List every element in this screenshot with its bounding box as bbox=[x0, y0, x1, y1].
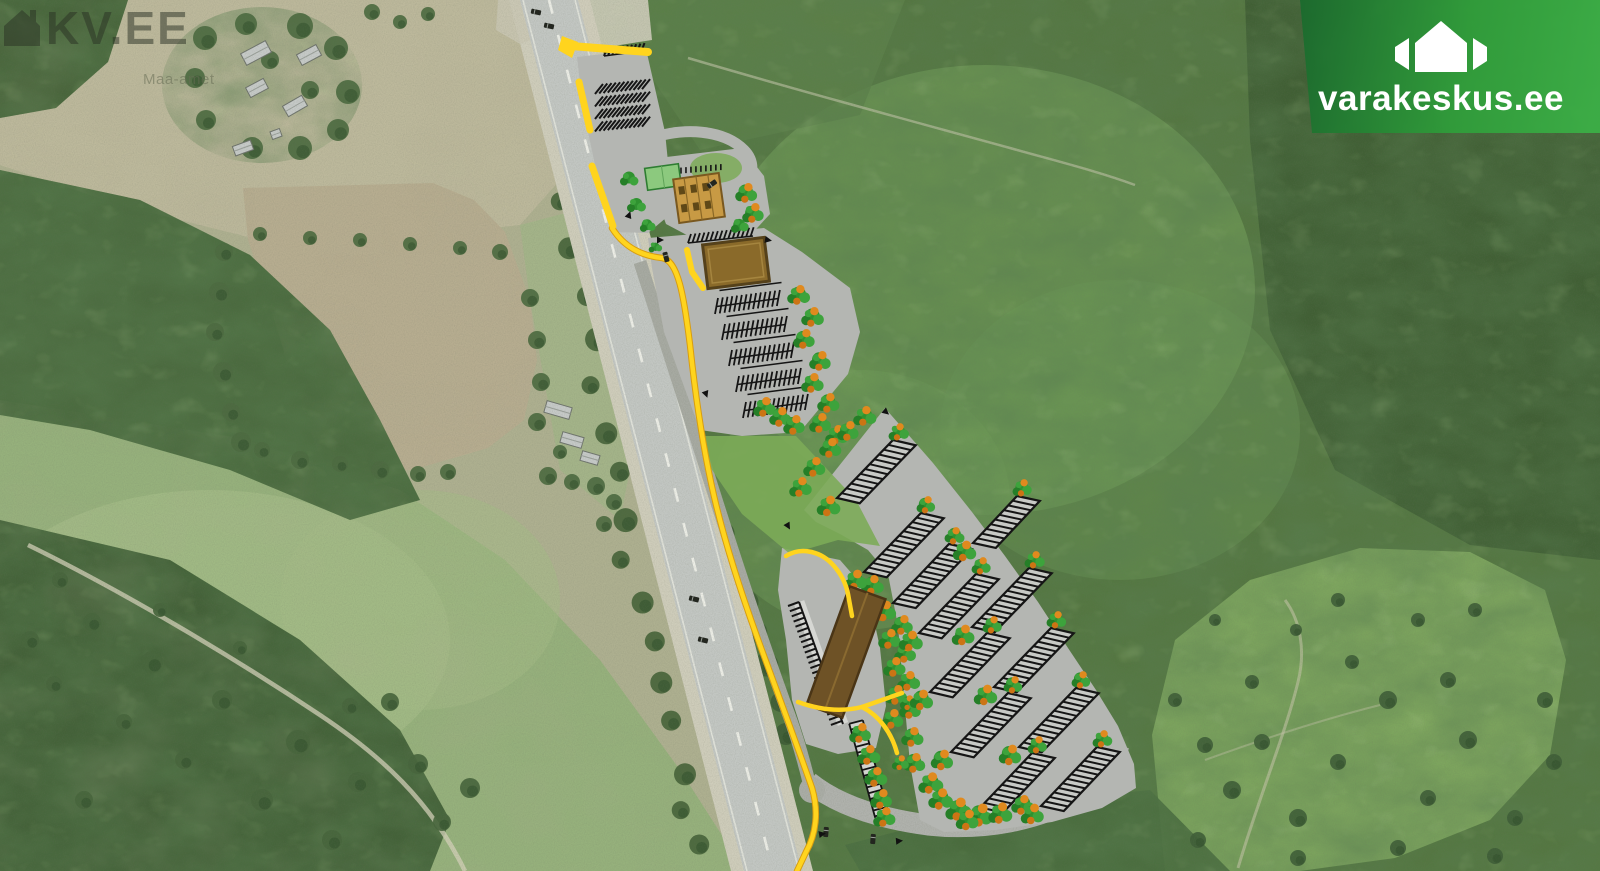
autumn-tree bbox=[959, 554, 967, 562]
autumn-tree bbox=[807, 386, 814, 393]
tree bbox=[813, 380, 824, 391]
tree bbox=[885, 608, 896, 619]
autumn-tree bbox=[775, 420, 782, 427]
tree bbox=[869, 752, 880, 763]
autumn-tree bbox=[903, 684, 910, 691]
canopy-cell bbox=[681, 204, 688, 213]
autumn-tree bbox=[896, 423, 903, 430]
tree bbox=[813, 314, 824, 325]
autumn-tree bbox=[922, 507, 928, 513]
autumn-tree bbox=[796, 285, 804, 293]
autumn-tree bbox=[919, 690, 928, 699]
autumn-tree bbox=[1098, 741, 1104, 747]
autumn-tree bbox=[759, 410, 766, 417]
tree bbox=[829, 503, 840, 514]
autumn-tree bbox=[905, 644, 913, 652]
autumn-tree bbox=[1020, 479, 1027, 486]
autumn-tree bbox=[938, 788, 947, 797]
car-body bbox=[870, 834, 876, 844]
canopy-cell bbox=[705, 200, 712, 209]
canopy-cell bbox=[678, 186, 685, 195]
map-source-text: Maa-amet bbox=[143, 71, 215, 88]
autumn-tree bbox=[952, 527, 959, 534]
tree bbox=[623, 173, 629, 179]
car-symbol bbox=[870, 834, 876, 844]
autumn-tree bbox=[897, 628, 904, 635]
car-body bbox=[823, 827, 829, 837]
autumn-tree bbox=[1018, 490, 1024, 496]
tree bbox=[801, 484, 812, 495]
autumn-tree bbox=[909, 766, 916, 773]
autumn-tree bbox=[762, 397, 770, 405]
autumn-tree bbox=[990, 616, 997, 623]
autumn-tree bbox=[855, 736, 862, 743]
autumn-tree bbox=[1052, 622, 1058, 628]
autumn-tree bbox=[1011, 676, 1018, 683]
tree bbox=[856, 577, 867, 588]
autumn-tree bbox=[1017, 808, 1024, 815]
tree bbox=[627, 204, 635, 212]
autumn-tree bbox=[862, 406, 870, 414]
tree bbox=[866, 413, 877, 424]
autumn-tree bbox=[876, 802, 883, 809]
autumn-tree bbox=[741, 196, 748, 203]
tree bbox=[648, 223, 656, 231]
autumn-tree bbox=[1100, 730, 1107, 737]
autumn-tree bbox=[795, 490, 802, 497]
autumn-tree bbox=[887, 629, 895, 637]
autumn-tree bbox=[1020, 795, 1028, 803]
autumn-tree bbox=[1077, 682, 1083, 688]
autumn-tree bbox=[905, 712, 912, 719]
autumn-tree bbox=[1009, 687, 1015, 693]
tree bbox=[649, 247, 655, 253]
tree bbox=[901, 761, 909, 769]
autumn-tree bbox=[744, 183, 752, 191]
tree bbox=[731, 225, 739, 233]
autumn-tree bbox=[965, 810, 974, 819]
autumn-tree bbox=[879, 820, 886, 827]
autumn-tree bbox=[798, 477, 806, 485]
autumn-tree bbox=[978, 804, 988, 814]
brown-square-building bbox=[703, 237, 770, 288]
autumn-tree bbox=[977, 568, 983, 574]
autumn-tree bbox=[890, 709, 898, 717]
kv-watermark-text: KV.EE bbox=[46, 2, 190, 54]
tree bbox=[955, 533, 964, 542]
autumn-tree bbox=[807, 320, 814, 327]
autumn-tree bbox=[935, 802, 943, 810]
brand-name-text: varakeskus.ee bbox=[1318, 79, 1564, 118]
tree bbox=[900, 429, 909, 438]
autumn-tree bbox=[826, 496, 835, 505]
aerial-map-svg: Maa-amet KV.EE varakeskus.ee bbox=[0, 0, 1600, 871]
tree bbox=[740, 223, 749, 232]
autumn-tree bbox=[859, 419, 866, 426]
autumn-tree bbox=[792, 415, 800, 423]
autumn-tree bbox=[983, 685, 992, 694]
tree bbox=[734, 219, 740, 225]
autumn-tree bbox=[979, 557, 986, 564]
tree bbox=[1103, 736, 1112, 745]
autumn-tree bbox=[956, 798, 966, 808]
autumn-tree bbox=[873, 767, 881, 775]
autumn-tree bbox=[889, 670, 896, 677]
tree bbox=[640, 225, 647, 232]
tree bbox=[876, 774, 887, 785]
tree bbox=[873, 582, 884, 593]
autumn-tree bbox=[1030, 804, 1039, 813]
autumn-tree bbox=[950, 538, 956, 544]
autumn-tree bbox=[748, 216, 755, 223]
autumn-tree bbox=[812, 457, 820, 465]
autumn-tree bbox=[924, 496, 931, 503]
autumn-tree bbox=[1030, 562, 1036, 568]
autumn-tree bbox=[962, 823, 970, 831]
autumn-tree bbox=[846, 421, 854, 429]
autumn-tree bbox=[870, 575, 878, 583]
tree bbox=[909, 678, 920, 689]
car-symbol bbox=[823, 827, 829, 837]
tree bbox=[965, 548, 976, 559]
autumn-tree bbox=[887, 722, 894, 729]
tree bbox=[799, 292, 810, 303]
autumn-tree bbox=[900, 615, 908, 623]
autumn-tree bbox=[863, 758, 870, 765]
autumn-tree bbox=[995, 816, 1003, 824]
autumn-tree bbox=[828, 438, 836, 446]
canopy-structure bbox=[673, 173, 725, 223]
autumn-tree bbox=[818, 413, 826, 421]
autumn-tree bbox=[1054, 611, 1061, 618]
autumn-tree bbox=[879, 789, 887, 797]
autumn-tree bbox=[894, 434, 900, 440]
autumn-tree bbox=[799, 342, 806, 349]
tree bbox=[630, 199, 636, 205]
autumn-tree bbox=[998, 802, 1007, 811]
autumn-tree bbox=[1008, 745, 1017, 754]
autumn-tree bbox=[958, 638, 966, 646]
aerial-site-plan-image: Maa-amet KV.EE varakeskus.ee bbox=[0, 0, 1600, 871]
autumn-tree bbox=[892, 657, 900, 665]
brand-banner: varakeskus.ee bbox=[1300, 0, 1600, 133]
autumn-tree bbox=[904, 705, 909, 710]
autumn-tree bbox=[778, 407, 786, 415]
autumn-tree bbox=[1033, 747, 1039, 753]
autumn-tree bbox=[815, 364, 822, 371]
tree bbox=[1035, 557, 1044, 566]
autumn-tree bbox=[793, 298, 800, 305]
autumn-tree bbox=[962, 541, 971, 550]
autumn-tree bbox=[866, 745, 874, 753]
autumn-tree bbox=[907, 740, 914, 747]
autumn-tree bbox=[912, 753, 920, 761]
autumn-tree bbox=[910, 727, 918, 735]
autumn-tree bbox=[823, 509, 831, 517]
autumn-tree bbox=[916, 703, 924, 711]
autumn-tree bbox=[899, 755, 905, 761]
autumn-tree bbox=[884, 642, 891, 649]
autumn-tree bbox=[810, 373, 818, 381]
tree bbox=[656, 245, 662, 251]
autumn-tree bbox=[925, 786, 933, 794]
canopy-cell bbox=[690, 184, 697, 193]
autumn-tree bbox=[900, 656, 907, 663]
maa-amet-watermark: Maa-amet bbox=[143, 71, 215, 88]
autumn-tree bbox=[823, 406, 830, 413]
tree bbox=[629, 177, 638, 186]
tree bbox=[643, 220, 648, 225]
autumn-tree bbox=[858, 723, 866, 731]
autumn-tree bbox=[1005, 758, 1013, 766]
tree bbox=[651, 243, 655, 247]
autumn-tree bbox=[1035, 736, 1042, 743]
autumn-tree bbox=[1032, 551, 1039, 558]
autumn-tree bbox=[908, 631, 917, 640]
autumn-tree bbox=[906, 671, 914, 679]
canopy-cell bbox=[693, 202, 700, 211]
tree bbox=[912, 638, 923, 649]
autumn-tree bbox=[825, 451, 832, 458]
tree bbox=[1057, 617, 1066, 626]
autumn-tree bbox=[961, 625, 970, 634]
autumn-tree bbox=[815, 426, 822, 433]
autumn-tree bbox=[843, 434, 850, 441]
tree bbox=[986, 692, 997, 703]
autumn-tree bbox=[896, 765, 901, 770]
autumn-tree bbox=[928, 772, 937, 781]
tree bbox=[637, 203, 646, 212]
autumn-tree bbox=[789, 428, 796, 435]
autumn-tree bbox=[751, 203, 759, 211]
autumn-tree bbox=[1079, 671, 1086, 678]
autumn-tree bbox=[988, 627, 994, 633]
autumn-tree bbox=[802, 329, 810, 337]
autumn-tree bbox=[980, 698, 988, 706]
autumn-tree bbox=[853, 570, 862, 579]
autumn-tree bbox=[810, 307, 818, 315]
autumn-tree bbox=[818, 351, 826, 359]
autumn-tree bbox=[826, 393, 834, 401]
autumn-tree bbox=[1027, 817, 1035, 825]
autumn-tree bbox=[870, 780, 877, 787]
autumn-tree bbox=[882, 807, 890, 815]
autumn-tree bbox=[937, 763, 945, 771]
autumn-tree bbox=[940, 750, 949, 759]
autumn-tree bbox=[809, 470, 816, 477]
